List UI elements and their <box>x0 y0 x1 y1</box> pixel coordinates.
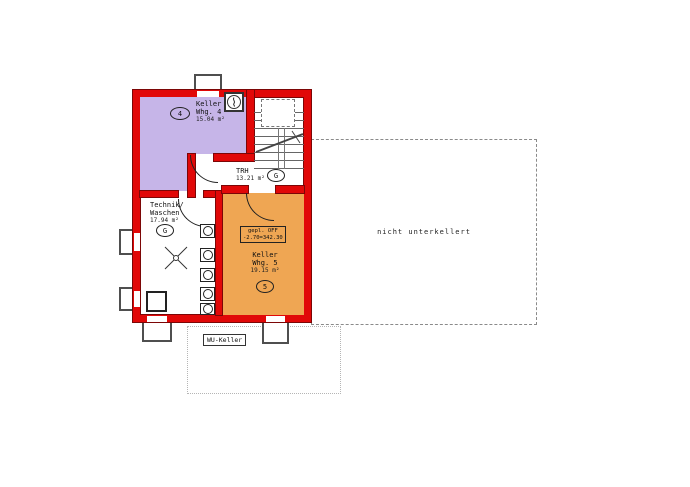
room-name: Keller <box>240 251 290 259</box>
appliance-dial-icon <box>203 226 213 236</box>
chimney-flame-icon <box>226 94 242 110</box>
wall-whg5-top-left <box>222 186 248 193</box>
room-area: 17.94 m² <box>150 217 184 224</box>
nicht-unterkellert-region: nicht unterkellert <box>311 139 537 325</box>
room-badge-trh: G <box>267 169 285 182</box>
chimney-box <box>224 92 244 112</box>
lightwell-bottom-right <box>262 320 289 344</box>
wu-keller-label: WU-Keller <box>203 334 246 346</box>
wall-stairwell <box>247 90 254 161</box>
level-annotation-whg5: gepl. OFF -2.70=342.30 <box>240 226 286 243</box>
floor-plan-canvas: nicht unterkellert <box>0 0 690 487</box>
room-label-trh: TRH 13.21 m² <box>236 167 265 182</box>
sump-pit <box>146 291 167 312</box>
room-name: Whg. 4 <box>196 108 225 116</box>
appliance-dial-icon <box>203 250 213 260</box>
room-name: Technik/ <box>150 201 184 209</box>
appliance-symbol-3 <box>200 268 215 282</box>
wall-technik-top-left <box>140 191 178 197</box>
room-label-whg5: Keller Whg. 5 19.15 m² <box>240 251 290 274</box>
room-area: 19.15 m² <box>240 267 290 274</box>
appliance-dial-icon <box>203 304 213 314</box>
room-label-technik: Technik/ Waschen 17.94 m² <box>150 201 184 224</box>
room-name: Waschen <box>150 209 184 217</box>
wall-hall-top <box>214 154 254 161</box>
window-gap-bottom-right <box>266 316 285 322</box>
appliance-symbol-5 <box>200 303 215 315</box>
room-number-badge-whg5: 5 <box>256 280 274 293</box>
room-area: 15.04 m² <box>196 116 225 123</box>
room-badge-technik: G <box>156 224 174 237</box>
stair-stringer <box>278 128 285 169</box>
wall-technik-right <box>216 191 222 315</box>
room-name: Whg. 5 <box>240 259 290 267</box>
wall-whg5-top-right <box>276 186 304 193</box>
lightwell-bottom-left <box>142 320 172 342</box>
appliance-dial-icon <box>203 270 213 280</box>
appliance-dial-icon <box>203 289 213 299</box>
level-line2: -2.70=342.30 <box>243 235 283 242</box>
room-number-badge-whg4: 4 <box>170 107 190 120</box>
window-gap-bottom-left <box>147 316 167 322</box>
appliance-symbol-1 <box>200 224 215 238</box>
window-gap-left-upper <box>134 233 140 251</box>
level-line1: gepl. OFF <box>243 228 283 235</box>
room-name: Keller <box>196 100 225 108</box>
room-name: TRH <box>236 167 265 175</box>
nicht-unterkellert-label: nicht unterkellert <box>377 228 471 236</box>
window-gap-left-lower <box>134 291 140 307</box>
room-label-whg4: Keller Whg. 4 15.04 m² <box>196 100 225 123</box>
appliance-symbol-4 <box>200 287 215 301</box>
stair-upper-flight-dashed <box>261 99 295 127</box>
room-area: 13.21 m² <box>236 175 265 182</box>
appliance-symbol-2 <box>200 248 215 262</box>
